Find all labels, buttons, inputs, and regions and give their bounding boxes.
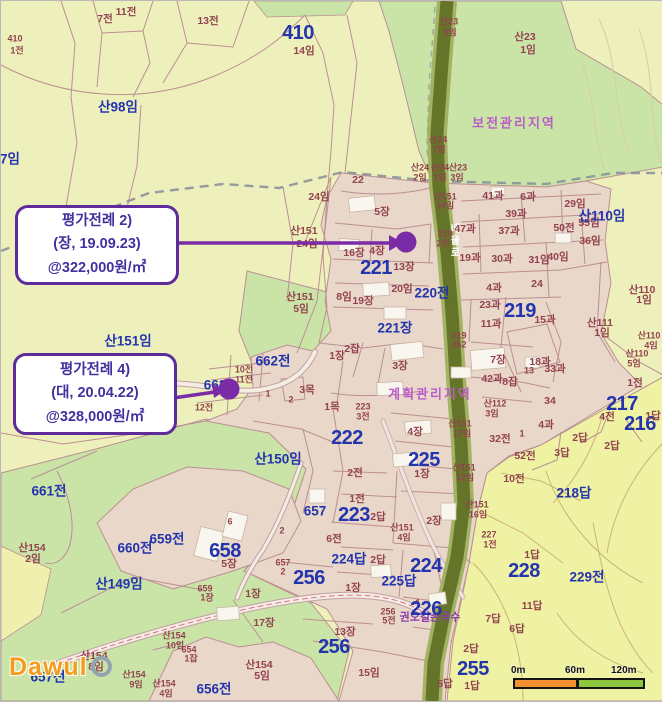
watermark-text: Dawul (9, 653, 88, 681)
callout-title: 평가전례 2) (18, 211, 176, 232)
callout-title: 평가전례 4) (16, 360, 174, 381)
scale-tick-0: 0m (511, 665, 525, 676)
appraisal-callout-4: 평가전례 4) (대, 20.04.22) @328,000원/㎡ (13, 353, 177, 435)
scale-seg-orange (515, 680, 579, 687)
callout-price: @322,000원/㎡ (18, 258, 176, 279)
callout-date: (장, 19.09.23) (18, 234, 176, 255)
watermark: Dawul (9, 653, 112, 682)
callout-price: @328,000원/㎡ (16, 407, 174, 428)
scale-seg-green (579, 680, 643, 687)
cadastral-map: 4101전7전11전13전41014임산98임7임산235임산231임보전관리지… (0, 0, 662, 702)
scale-bar: 0m 60m 120m (509, 665, 649, 691)
scale-tick-60: 60m (565, 665, 585, 676)
map-canvas (1, 1, 662, 701)
scale-bar-graphic (513, 678, 645, 689)
watermark-ring-icon (91, 656, 112, 677)
scale-tick-120: 120m (611, 665, 637, 676)
callout-date: (대, 20.04.22) (16, 383, 174, 404)
appraisal-callout-2: 평가전례 2) (장, 19.09.23) @322,000원/㎡ (15, 205, 179, 285)
